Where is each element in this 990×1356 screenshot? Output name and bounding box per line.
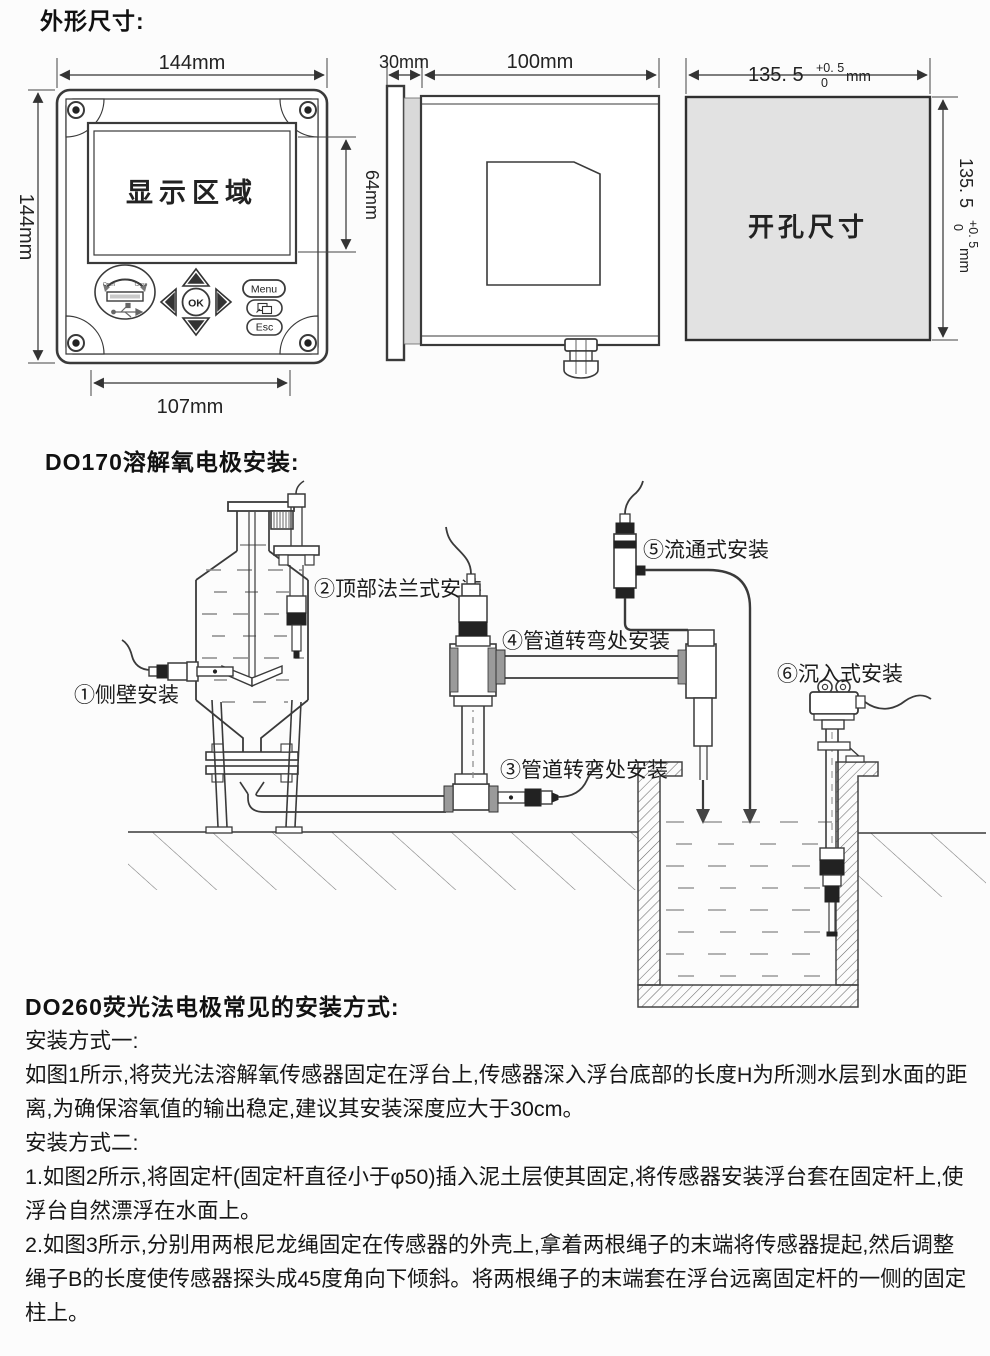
cutout-height-dim: 135. 5 +0. 5 0 mm: [951, 158, 980, 273]
method1-title: 安装方式一:: [25, 1024, 973, 1058]
outlet-pipe: [256, 794, 446, 796]
water-basin: [638, 762, 878, 1007]
esc-button-label: Esc: [256, 322, 274, 334]
label-immersion-install: ⑥沉入式安装: [777, 663, 903, 686]
svg-text:+0. 5: +0. 5: [966, 220, 980, 248]
front-width-dim: 144mm: [159, 52, 226, 74]
panel-depth-dim: 30mm: [379, 52, 429, 72]
agitator: [222, 512, 282, 686]
usb-cover[interactable]: Open Close: [95, 265, 155, 319]
front-bezel: [387, 86, 404, 360]
sensor1-cable: [122, 640, 151, 670]
side-view-drawing: 30mm 100mm: [379, 51, 659, 378]
label-flow-through-install: ⑤流通式安装: [643, 539, 769, 562]
cutout-view-drawing: 135. 5 +0. 5 0 mm 开孔尺寸 135. 5 +0. 5 0 mm: [686, 58, 980, 340]
cutout-width-value: 135. 5: [748, 64, 804, 86]
sensor-immersion: [810, 680, 931, 936]
do260-section-title: DO260荧光法电极常见的安装方式:: [25, 988, 400, 1022]
svg-text:0: 0: [951, 224, 965, 231]
ok-button-label: OK: [188, 298, 204, 310]
housing: [421, 96, 659, 345]
water-surface: [666, 822, 832, 976]
do170-installation-diagram: ①侧壁安装 ②顶部法兰式安装: [0, 480, 990, 1020]
gasket: [404, 98, 421, 344]
do170-section-title: DO170溶解氧电极安装:: [45, 443, 300, 477]
method1-body: 如图1所示,将荧光法溶解氧传感器固定在浮台上,传感器深入浮台底部的长度H为所测水…: [25, 1058, 973, 1126]
method2-step2: 2.如图3所示,分别用两根尼龙绳固定在传感器的外壳上,拿着两根绳子的末端将传感器…: [25, 1228, 973, 1330]
usb-close-label: Close: [135, 282, 148, 288]
sensor-side-wall: [122, 640, 233, 681]
display-area-label: 显示区域: [126, 178, 258, 208]
display-height-dim: 64mm: [362, 170, 382, 220]
pipe-tees: [444, 630, 716, 812]
flow-cell-inlet-tube: [625, 598, 688, 630]
label-top-flange-install: ②顶部法兰式安装: [314, 578, 482, 601]
body-depth-dim: 100mm: [507, 51, 574, 73]
svg-text:135. 5: 135. 5: [956, 158, 976, 208]
front-bottom-dim: 107mm: [157, 396, 224, 418]
usb-open-label: Open: [103, 282, 115, 288]
cutout-width-tol-plus: +0. 5: [816, 61, 844, 75]
front-view-drawing: 144mm 144mm 显示区域 64mm: [15, 52, 382, 418]
page-title-dimensions: 外形尺寸:: [40, 2, 145, 36]
cutout-width-unit: mm: [846, 68, 871, 85]
method2-title: 安装方式二:: [25, 1126, 973, 1160]
dimension-drawings: 144mm 144mm 显示区域 64mm: [0, 40, 990, 440]
label-pipe-bend-install-3: ③管道转弯处安装: [500, 759, 668, 782]
svg-text:mm: mm: [956, 248, 973, 273]
front-height-dim: 144mm: [15, 194, 37, 261]
cutout-width-tol-zero: 0: [821, 76, 828, 90]
method2-step1: 1.如图2所示,将固定杆(固定杆直径小于φ50)插入泥土层使其固定,将传感器安装…: [25, 1160, 973, 1228]
cable-gland: [564, 339, 598, 378]
do260-instructions: 安装方式一: 如图1所示,将荧光法溶解氧传感器固定在浮台上,传感器深入浮台底部的…: [25, 1024, 973, 1330]
menu-button-label: Menu: [251, 284, 277, 296]
label-pipe-bend-install-4: ④管道转弯处安装: [502, 630, 670, 653]
label-side-wall-install: ①侧壁安装: [74, 684, 179, 707]
sensor6-cable: [865, 695, 931, 708]
cutout-label: 开孔尺寸: [748, 213, 868, 242]
